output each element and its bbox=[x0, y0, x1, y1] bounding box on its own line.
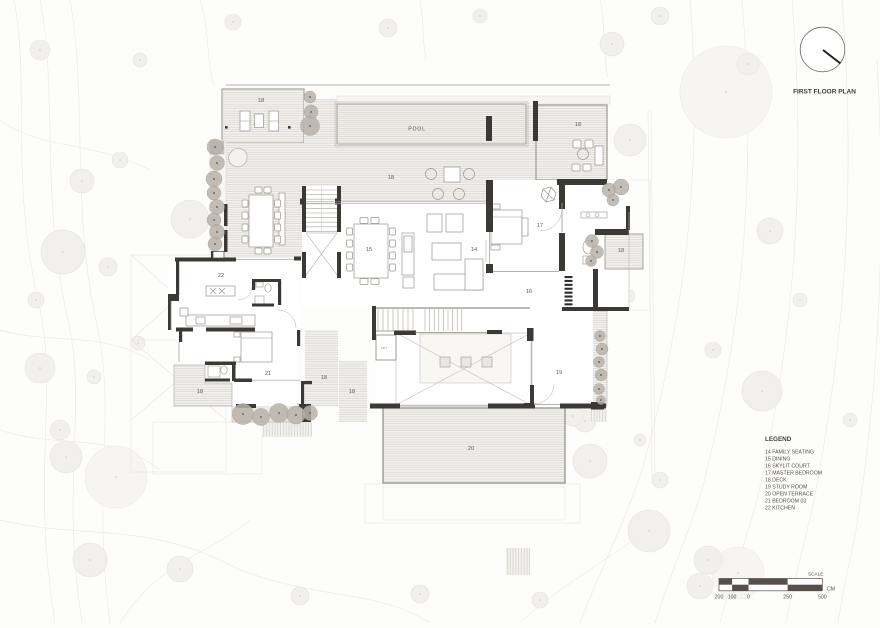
svg-text:200: 200 bbox=[715, 595, 724, 601]
svg-text:20: 20 bbox=[468, 446, 474, 452]
svg-text:18: 18 bbox=[388, 175, 394, 181]
svg-text:16: 16 bbox=[526, 289, 532, 295]
svg-text:22 KITCHEN: 22 KITCHEN bbox=[765, 506, 795, 512]
svg-text:21: 21 bbox=[265, 371, 271, 377]
svg-text:14: 14 bbox=[471, 247, 477, 253]
svg-text:18: 18 bbox=[575, 122, 581, 128]
svg-text:18: 18 bbox=[618, 248, 624, 254]
svg-text:17: 17 bbox=[537, 223, 543, 229]
svg-text:15 DINING: 15 DINING bbox=[765, 457, 790, 463]
svg-text:19: 19 bbox=[556, 370, 562, 376]
svg-text:18 DECK: 18 DECK bbox=[765, 478, 787, 484]
svg-text:SCALE: SCALE bbox=[808, 572, 823, 577]
svg-text:LIFT: LIFT bbox=[381, 346, 387, 350]
svg-text:14 FAMILY SEATING: 14 FAMILY SEATING bbox=[765, 450, 814, 456]
svg-text:18: 18 bbox=[321, 375, 327, 381]
svg-text:15: 15 bbox=[366, 247, 372, 253]
svg-text:0: 0 bbox=[747, 595, 750, 601]
svg-text:FIRST FLOOR PLAN: FIRST FLOOR PLAN bbox=[793, 89, 856, 96]
svg-text:17 MASTER BEDROOM: 17 MASTER BEDROOM bbox=[765, 471, 822, 477]
svg-text:21 BEDROOM 03: 21 BEDROOM 03 bbox=[765, 499, 806, 505]
svg-text:18: 18 bbox=[349, 389, 355, 395]
svg-text:500: 500 bbox=[818, 595, 827, 601]
svg-text:CM: CM bbox=[827, 587, 835, 593]
svg-text:16 SKYLIT COURT: 16 SKYLIT COURT bbox=[765, 464, 811, 470]
svg-text:250: 250 bbox=[783, 595, 792, 601]
svg-text:18: 18 bbox=[197, 389, 203, 395]
svg-text:100: 100 bbox=[728, 595, 737, 601]
svg-text:22: 22 bbox=[218, 273, 224, 279]
svg-text:LEGEND: LEGEND bbox=[765, 436, 792, 443]
svg-text:18: 18 bbox=[258, 98, 264, 104]
svg-text:20 OPEN TERRACE: 20 OPEN TERRACE bbox=[765, 492, 814, 498]
svg-text:POOL: POOL bbox=[408, 127, 426, 133]
svg-text:19 STUDY ROOM: 19 STUDY ROOM bbox=[765, 485, 807, 491]
